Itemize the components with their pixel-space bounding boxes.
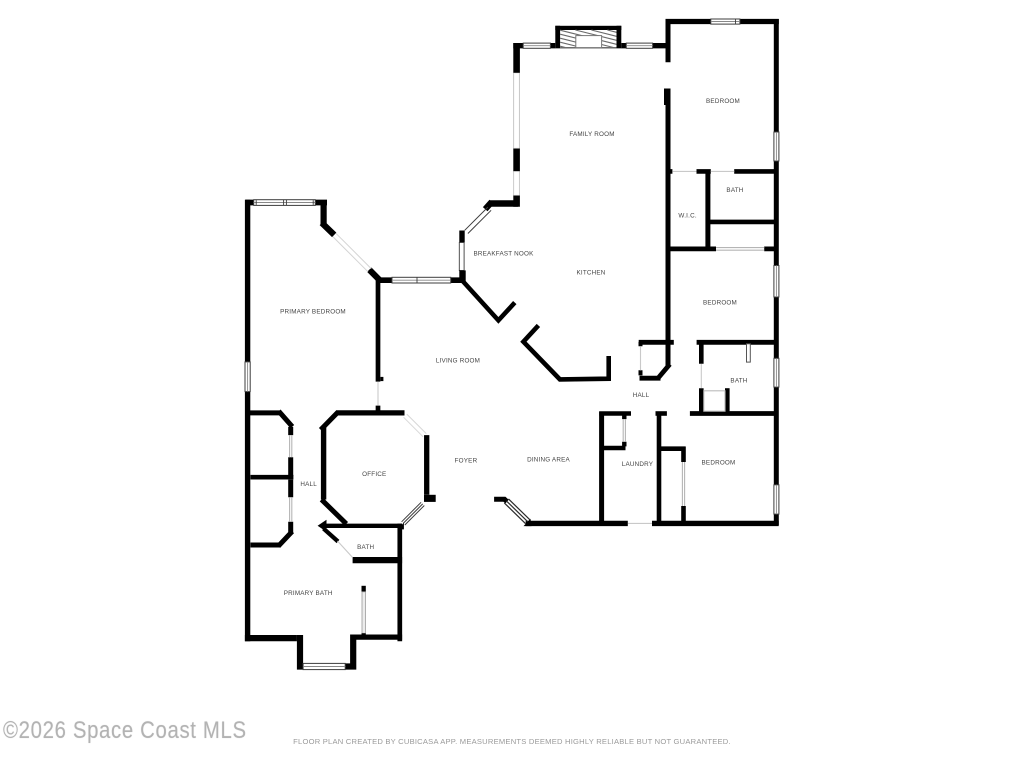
svg-text:DINING AREA: DINING AREA xyxy=(527,456,570,463)
svg-text:KITCHEN: KITCHEN xyxy=(576,269,605,276)
svg-text:BEDROOM: BEDROOM xyxy=(702,459,736,466)
svg-text:FAMILY ROOM: FAMILY ROOM xyxy=(569,131,614,138)
svg-text:PRIMARY BATH: PRIMARY BATH xyxy=(284,590,333,597)
svg-text:BEDROOM: BEDROOM xyxy=(703,299,737,306)
svg-text:BREAKFAST NOOK: BREAKFAST NOOK xyxy=(473,251,534,258)
svg-text:BEDROOM: BEDROOM xyxy=(706,98,740,105)
svg-text:BATH: BATH xyxy=(357,544,374,551)
svg-text:OFFICE: OFFICE xyxy=(362,471,386,478)
svg-text:BATH: BATH xyxy=(726,187,743,194)
svg-text:LAUNDRY: LAUNDRY xyxy=(622,461,654,468)
svg-text:PRIMARY BEDROOM: PRIMARY BEDROOM xyxy=(280,309,346,316)
svg-text:HALL: HALL xyxy=(300,481,317,488)
svg-text:W.I.C.: W.I.C. xyxy=(678,212,696,219)
svg-text:LIVING ROOM: LIVING ROOM xyxy=(436,358,480,365)
svg-text:HALL: HALL xyxy=(633,392,650,399)
svg-text:FOYER: FOYER xyxy=(455,458,478,465)
svg-text:BATH: BATH xyxy=(730,377,747,384)
